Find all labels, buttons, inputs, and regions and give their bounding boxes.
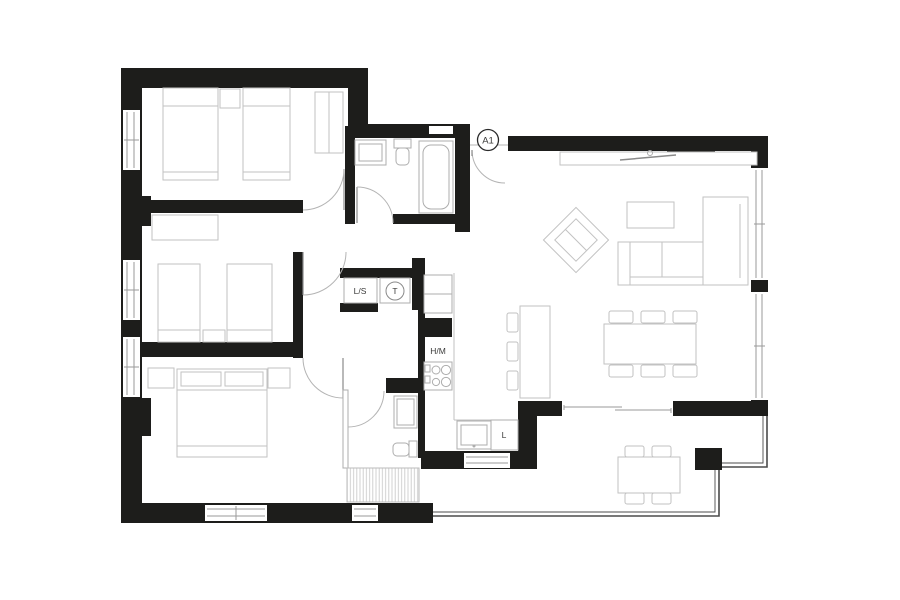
balcony-railing-right-inner [722, 416, 763, 463]
balcony-railing-right-outer [722, 416, 767, 467]
dining-table [604, 324, 696, 364]
floor-plan-canvas: L/S T H/M L [0, 0, 900, 600]
balcony-chair-3 [625, 493, 644, 504]
bath2-toilet-bowl [393, 443, 409, 456]
window-living-right-2 [753, 292, 766, 400]
dishwasher-label: L [502, 430, 507, 440]
window-bath2 [352, 505, 378, 521]
window-kitchen [464, 453, 510, 468]
bar-stool-3 [507, 371, 518, 390]
balcony-chair-2 [652, 446, 671, 457]
window-bedroom3-left [123, 337, 140, 397]
bath1-toilet-bowl [396, 148, 409, 165]
wall-kitchen-connector [518, 401, 537, 469]
wall-bath2-top [386, 378, 422, 393]
laundry: L/S T [344, 278, 410, 303]
bedroom-1 [163, 88, 343, 180]
bedroom2-door [303, 252, 346, 295]
balcony-table [618, 457, 680, 493]
wall-living-bottom-right [673, 401, 768, 416]
dining-set [604, 311, 697, 377]
dining-chair-6 [673, 365, 697, 377]
living-room [543, 151, 757, 378]
bedroom-3 [148, 368, 290, 457]
bathroom1-door [357, 187, 393, 223]
wall-top [121, 68, 368, 88]
hm-label: H/M [430, 346, 446, 356]
window-bedroom1 [123, 110, 140, 170]
washer-label: L/S [354, 286, 367, 296]
bedroom1-door [303, 169, 344, 210]
dryer-label: T [392, 286, 397, 296]
kitchen-island [520, 306, 550, 398]
wall-living-top [508, 136, 768, 151]
stove [424, 362, 452, 390]
kitchen-sink [457, 421, 491, 449]
armchair [543, 207, 608, 272]
wall-bath1-bottom [393, 214, 455, 224]
dining-chair-3 [673, 311, 697, 323]
wall-entry [455, 124, 470, 232]
wall-laundry-top [340, 268, 412, 278]
bar-stool-1 [507, 313, 518, 332]
sideboard [560, 152, 757, 165]
bed2-nightstand [203, 330, 225, 342]
dining-chair-5 [641, 365, 665, 377]
bed3-nightstand-left [148, 368, 174, 388]
entrance-label: A1 [482, 136, 494, 147]
wall-bed1-bed2 [142, 200, 303, 213]
bedroom3-door [303, 358, 343, 398]
wall-bottom [121, 503, 433, 523]
floor-plan-drawing: L/S T H/M L [0, 0, 900, 600]
coffee-table [627, 202, 674, 228]
bed3-pillow-a [181, 372, 221, 386]
bedroom-2 [152, 215, 272, 342]
wall-left-bump-2 [142, 398, 151, 436]
wall-bath1-left [345, 126, 355, 224]
dining-chair-1 [609, 311, 633, 323]
balcony-chair-1 [625, 446, 644, 457]
wall-right-pier [751, 280, 768, 292]
wall-kitchen-left-upper [412, 258, 425, 310]
bed2-desk [152, 215, 218, 240]
bath2-partition [343, 390, 348, 468]
wall-top-step [348, 88, 368, 126]
window-bedroom3-bottom [205, 505, 267, 521]
balcony-pillar [695, 448, 722, 470]
bathroom-2 [347, 396, 419, 502]
bed3-pillow-b [225, 372, 263, 386]
balcony-chair-4 [652, 493, 671, 504]
dining-chair-2 [641, 311, 665, 323]
bathroom-1 [355, 139, 453, 213]
vent-slot-bath1 [429, 126, 453, 134]
kitchen-shaft [424, 318, 452, 337]
bath1-bathtub [419, 141, 453, 213]
window-balcony-slider [562, 403, 673, 415]
window-bedroom2 [123, 260, 140, 320]
bed1-twin-a [163, 88, 218, 180]
bed3-nightstand-right [268, 368, 290, 388]
bath1-toilet-tank [394, 139, 411, 148]
wall-living-top-pier [667, 136, 715, 153]
dining-chair-4 [609, 365, 633, 377]
bath2-toilet-tank [409, 441, 417, 457]
bed1-twin-b [243, 88, 290, 180]
bath2-shower [347, 468, 419, 502]
wall-laundry-stub [340, 303, 378, 312]
bar-stool-2 [507, 342, 518, 361]
bathroom2-door [343, 390, 384, 468]
wall-bed2-bed3 [142, 342, 302, 357]
bed1-nightstand [220, 89, 240, 108]
entrance-marker: A1 [478, 130, 499, 151]
window-living-right-1 [753, 168, 766, 280]
